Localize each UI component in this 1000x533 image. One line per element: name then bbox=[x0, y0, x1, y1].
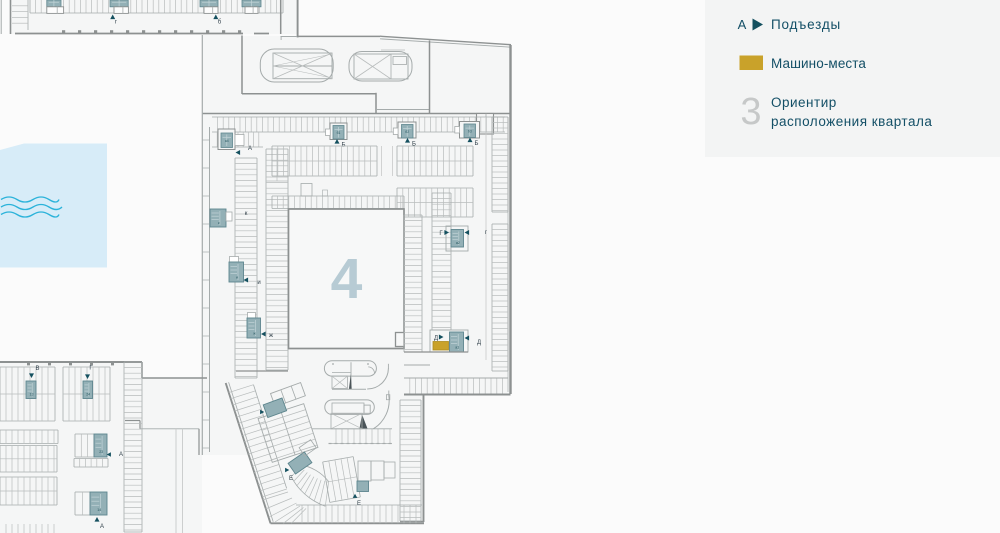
svg-text:А: А bbox=[100, 524, 104, 530]
svg-text:В: В bbox=[35, 366, 39, 372]
svg-text:б3: б3 bbox=[468, 129, 472, 133]
svg-text:А: А bbox=[248, 146, 252, 152]
svg-text:б1: б1 bbox=[337, 131, 341, 135]
svg-text:Б: Б bbox=[412, 142, 416, 148]
svg-text:и: и bbox=[257, 280, 260, 286]
svg-text:Е: Е bbox=[357, 501, 361, 507]
svg-text:23: 23 bbox=[99, 450, 103, 454]
svg-text:а1: а1 bbox=[455, 345, 459, 349]
svg-text:Б: Б bbox=[342, 143, 346, 149]
svg-text:Ориентир: Ориентир bbox=[771, 95, 837, 110]
svg-text:13: 13 bbox=[30, 392, 34, 396]
svg-text:Б: Б bbox=[475, 141, 479, 147]
svg-text:Д: Д bbox=[434, 336, 438, 342]
svg-text:расположения квартала: расположения квартала bbox=[771, 114, 932, 129]
svg-text:к: к bbox=[245, 211, 248, 217]
svg-text:4: 4 bbox=[331, 247, 363, 311]
svg-text:А: А bbox=[119, 452, 123, 458]
svg-text:Машино-места: Машино-места bbox=[771, 56, 866, 71]
svg-text:а2: а2 bbox=[456, 241, 460, 245]
svg-text:24: 24 bbox=[86, 392, 90, 396]
svg-text:и: и bbox=[236, 275, 238, 279]
svg-text:Е: Е bbox=[289, 476, 293, 482]
svg-text:ж: ж bbox=[269, 333, 273, 339]
svg-text:3: 3 bbox=[740, 91, 761, 133]
svg-text:Подъезды: Подъезды bbox=[771, 17, 841, 32]
svg-text:а4: а4 bbox=[225, 139, 229, 143]
svg-text:б: б bbox=[218, 20, 222, 26]
svg-text:14: 14 bbox=[97, 508, 101, 512]
svg-text:А: А bbox=[738, 17, 747, 32]
svg-text:Д: Д bbox=[477, 340, 481, 346]
svg-text:б2: б2 bbox=[405, 130, 409, 134]
